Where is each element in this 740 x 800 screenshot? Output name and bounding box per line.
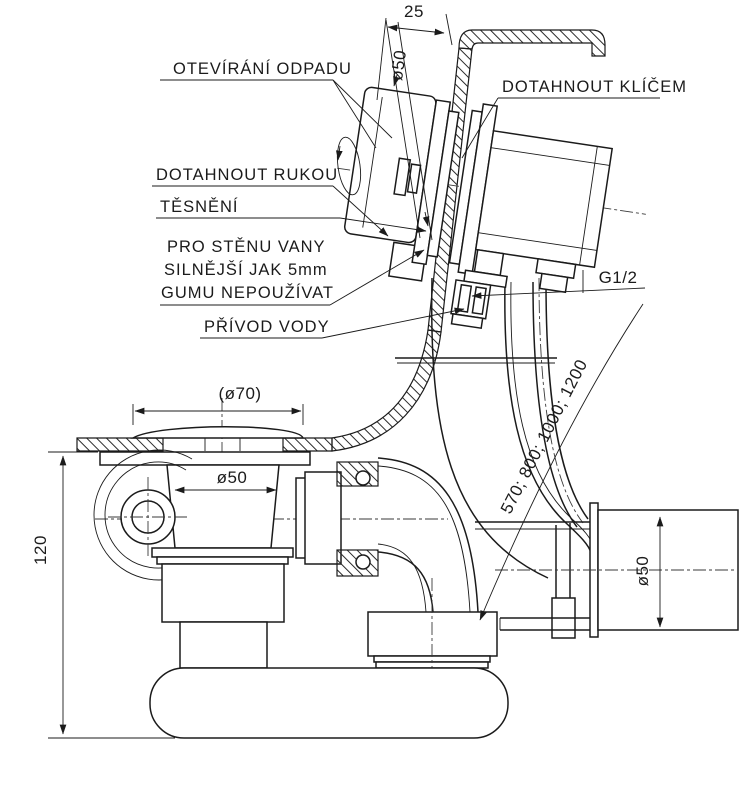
dim-pipe-lengths: 570; 800; 1000; 1200 <box>497 356 591 517</box>
tub-rim <box>459 30 605 56</box>
o-ring-top <box>356 471 370 485</box>
callout-wall-note-1: PRO STĚNU VANY <box>167 237 326 256</box>
dim-drain-dia: ø50 <box>217 468 248 487</box>
bath-waste-overflow-drawing: OTEVÍRÁNÍ ODPADU DOTAHNOUT KLÍČEM DOTAHN… <box>0 0 740 800</box>
overflow-filler-fitting <box>317 84 658 350</box>
callout-tighten-hand: DOTAHNOUT RUKOU <box>156 166 338 184</box>
dim-cap-dia: (ø70) <box>218 384 261 403</box>
dim-height-120: 120 <box>31 535 50 565</box>
tub-floor-right <box>283 438 332 451</box>
drain-lower-nut <box>162 564 284 622</box>
callout-wall-note-2: SILNĚJŠÍ JAK 5mm <box>164 260 328 279</box>
dim-outlet-dia: ø50 <box>633 556 652 587</box>
tub-curve <box>332 330 441 451</box>
trap-body <box>150 668 508 738</box>
trap-left-inlet <box>180 622 267 668</box>
drain-flange-plate <box>100 452 310 465</box>
trap-right-inlet <box>368 612 497 656</box>
callout-open-drain: OTEVÍRÁNÍ ODPADU <box>173 59 352 78</box>
fitting-body <box>476 131 612 267</box>
o-ring-bottom <box>356 555 370 569</box>
callout-tighten-wrench: DOTAHNOUT KLÍČEM <box>502 77 687 96</box>
technical-drawing-canvas: OTEVÍRÁNÍ ODPADU DOTAHNOUT KLÍČEM DOTAHN… <box>0 0 740 800</box>
overflow-pipe-left-wall <box>432 278 548 578</box>
tub-floor-left <box>77 438 163 451</box>
pipes <box>395 278 593 638</box>
callout-seal: TĚSNĚNÍ <box>160 197 239 216</box>
dim-thread: G1/2 <box>599 268 638 287</box>
drain-cap <box>133 427 303 438</box>
dim-25: 25 <box>404 2 424 21</box>
callout-water-supply: PŘÍVOD VODY <box>204 317 330 336</box>
callout-wall-note-3: GUMU NEPOUŽÍVAT <box>161 283 334 302</box>
